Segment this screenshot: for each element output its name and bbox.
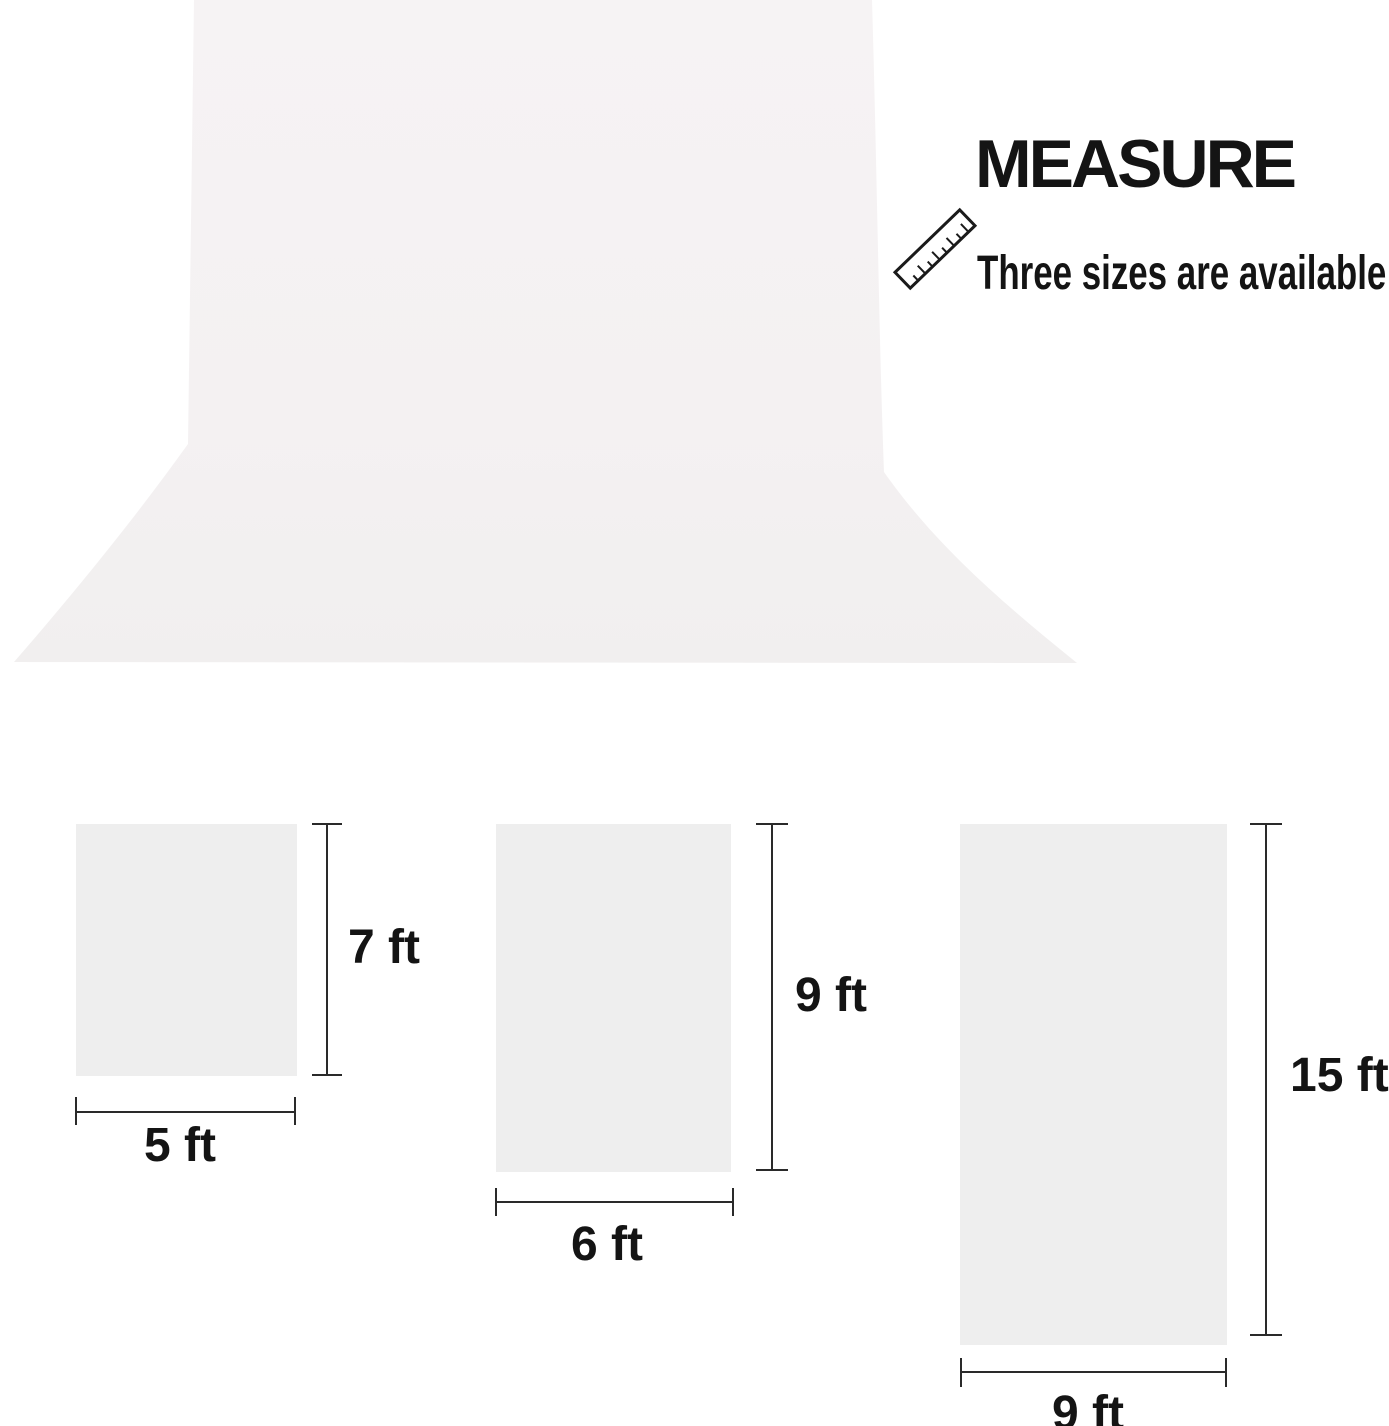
subtitle: Three sizes are available	[977, 250, 1386, 298]
height-dimension-line	[771, 824, 773, 1171]
height-cap-bottom	[1250, 1334, 1282, 1336]
height-cap-top	[1250, 823, 1282, 825]
size-swatch	[76, 824, 297, 1076]
width-label: 5 ft	[144, 1122, 216, 1170]
ruler-icon	[888, 202, 982, 296]
page-title: MEASURE	[975, 130, 1294, 198]
height-dimension-line	[326, 824, 328, 1076]
height-label: 7 ft	[348, 924, 420, 972]
width-label: 6 ft	[571, 1221, 643, 1269]
width-tick-left	[495, 1188, 497, 1216]
height-cap-top	[312, 823, 342, 825]
width-tick-right	[732, 1188, 734, 1216]
height-label: 15 ft	[1290, 1052, 1389, 1100]
backdrop-sweep	[0, 0, 1389, 700]
height-dimension-line	[1265, 824, 1267, 1336]
size-swatch	[496, 824, 731, 1172]
width-label: 9 ft	[1052, 1390, 1124, 1426]
width-tick-right	[294, 1097, 296, 1125]
width-dimension-line	[496, 1201, 733, 1203]
product-infographic: MEASURE Three sizes are available 7 ft	[0, 0, 1389, 1426]
width-tick-right	[1225, 1358, 1227, 1387]
height-cap-bottom	[312, 1074, 342, 1076]
height-cap-top	[756, 823, 788, 825]
backdrop-shape	[14, 0, 1077, 663]
height-label: 9 ft	[795, 972, 867, 1020]
width-tick-left	[75, 1097, 77, 1125]
height-cap-bottom	[756, 1169, 788, 1171]
width-dimension-line	[76, 1111, 296, 1113]
width-tick-left	[960, 1358, 962, 1387]
width-dimension-line	[961, 1371, 1226, 1373]
size-swatch	[960, 824, 1227, 1345]
